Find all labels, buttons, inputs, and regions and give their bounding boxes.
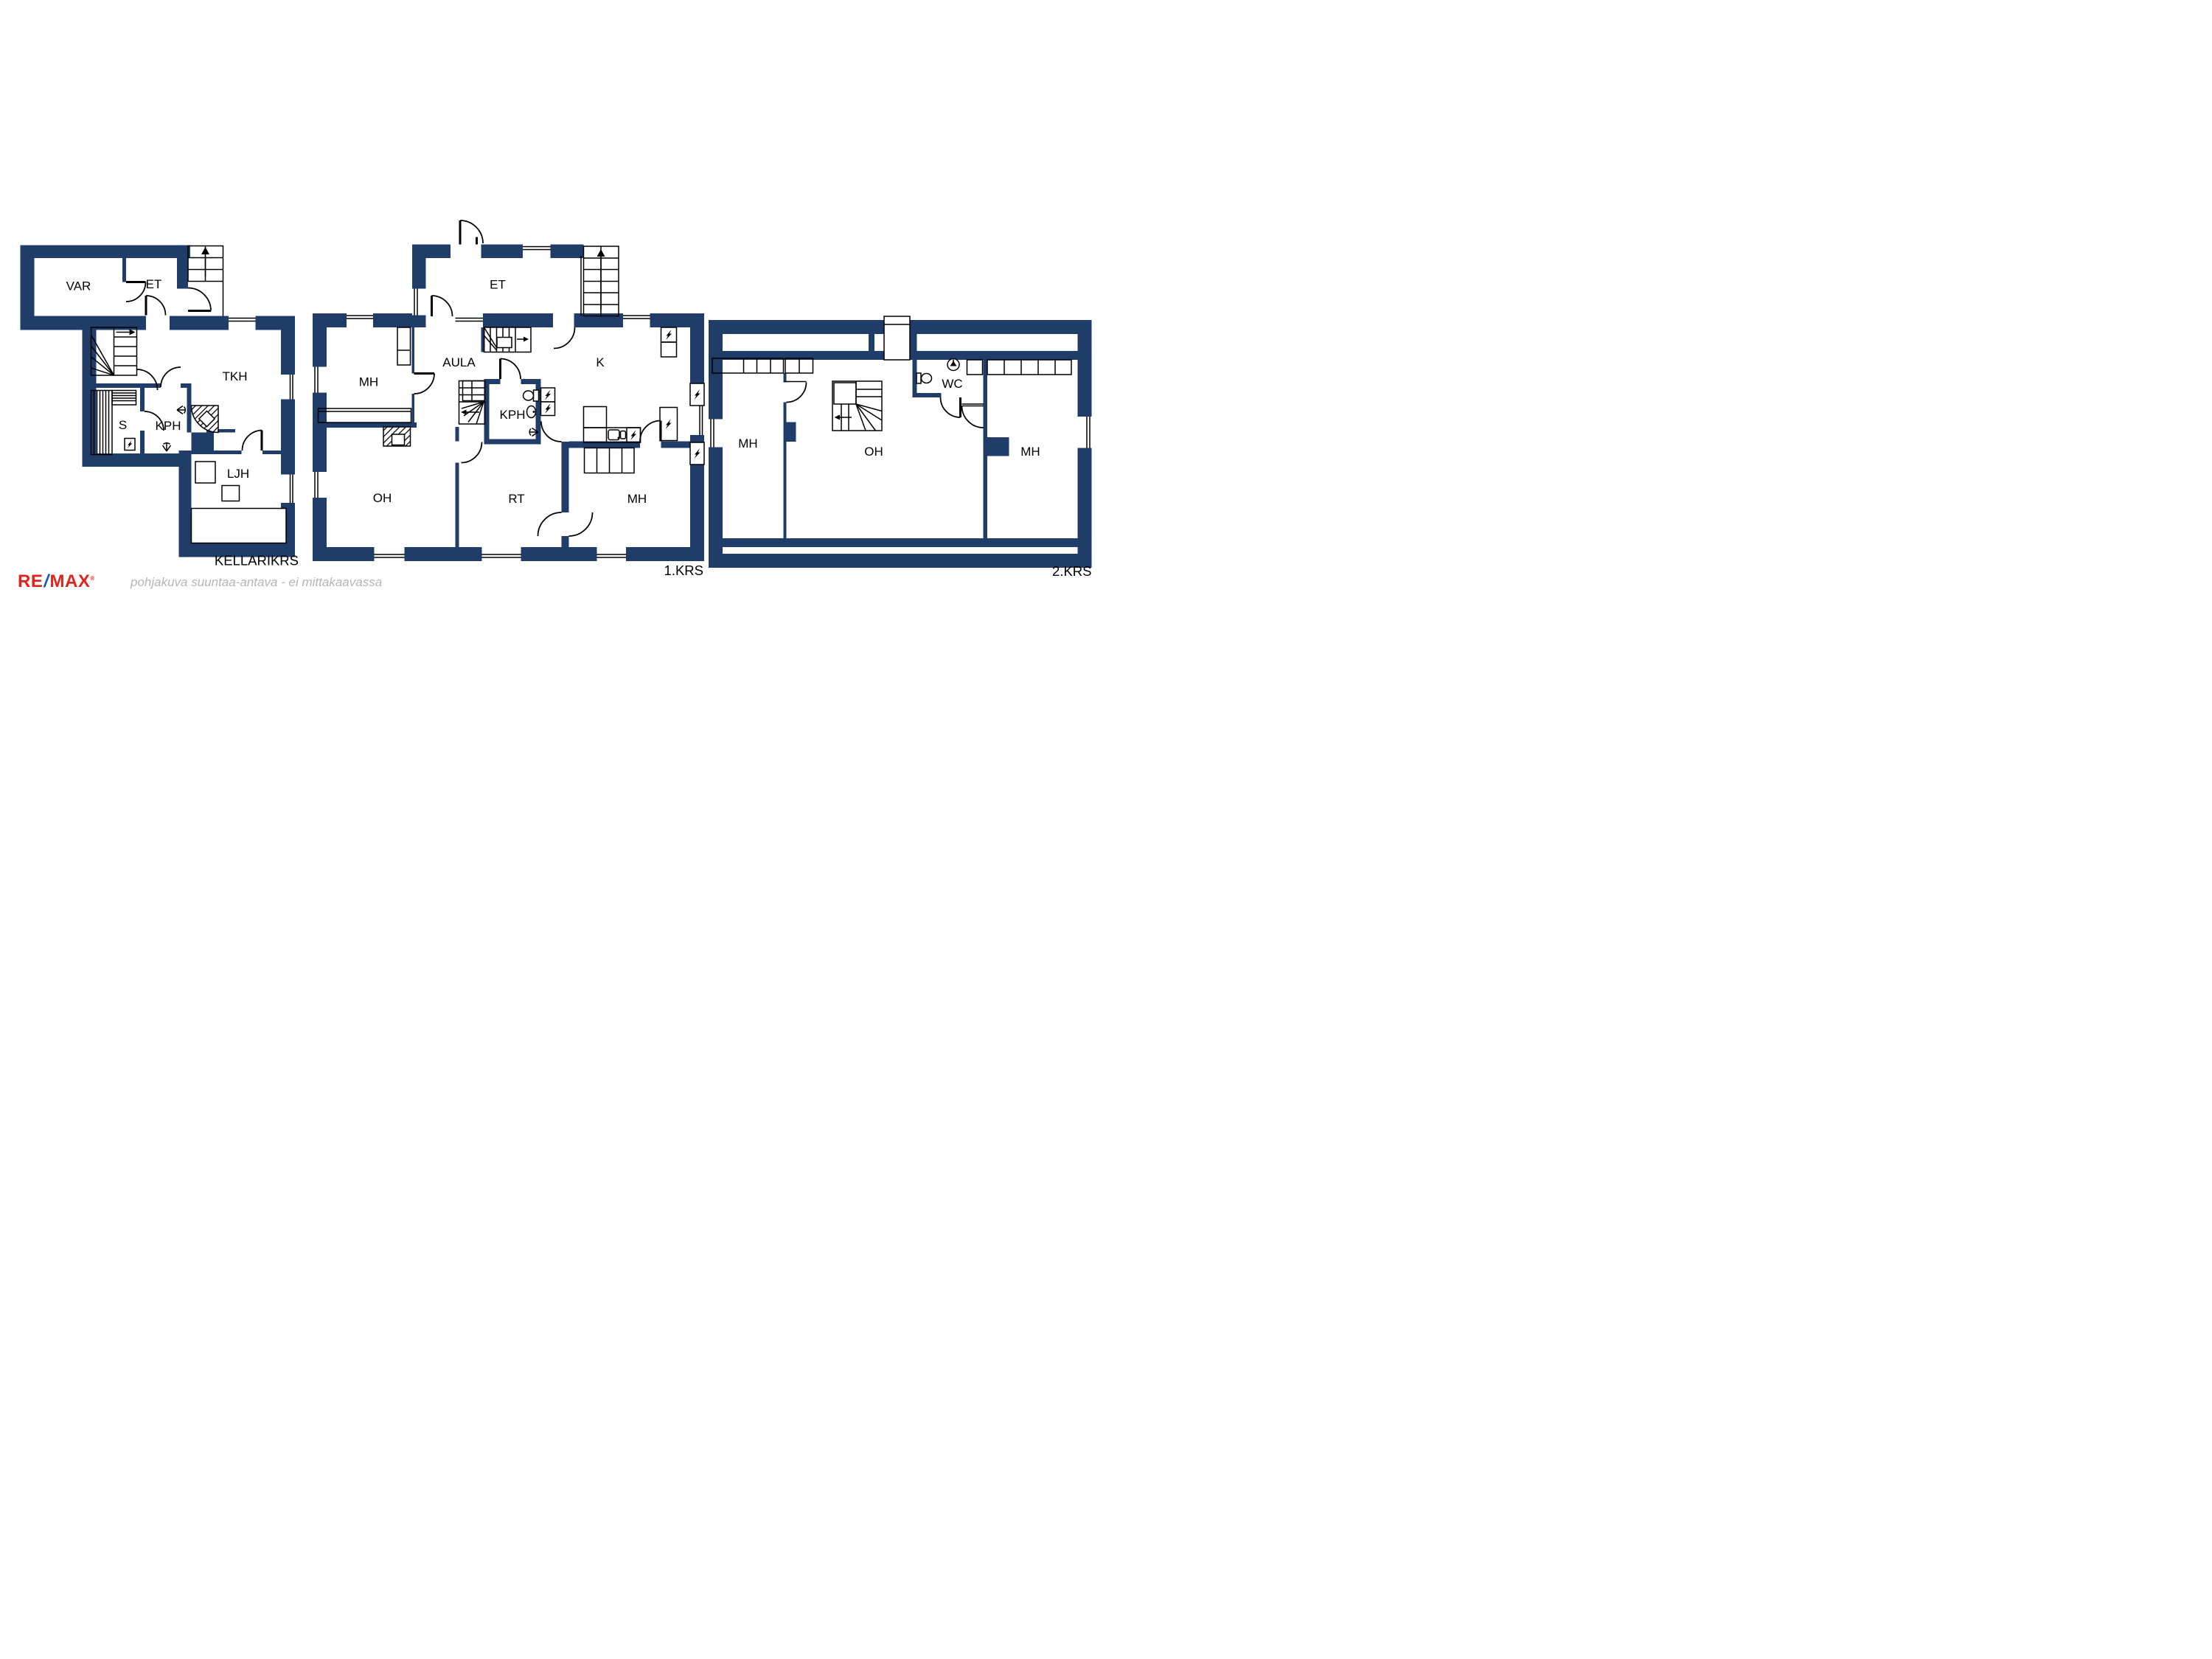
- window-icon: [523, 245, 551, 259]
- lightning-appliance-icon: [541, 388, 555, 416]
- doors: [126, 282, 262, 451]
- logo-re-text: RE: [18, 571, 43, 591]
- window-icon: [412, 289, 426, 316]
- room-label-et: ET: [490, 278, 506, 292]
- window-icon: [690, 406, 704, 435]
- windows: [709, 417, 1092, 448]
- floor-label-kellarikrs: KELLARIKRS: [215, 553, 299, 568]
- window-icon: [451, 316, 483, 328]
- room-label-oh: OH: [373, 491, 392, 505]
- sink-icon: [947, 359, 959, 371]
- entrance-stairs-icon: [581, 246, 619, 316]
- window-icon: [623, 313, 650, 327]
- room-label-tkh: TKH: [223, 369, 248, 383]
- room-label-kph: KPH: [156, 419, 181, 433]
- stairs-down-icon: [832, 381, 882, 431]
- fireplace-icon: [383, 427, 411, 446]
- disclaimer-text: pohjakuva suuntaa-antava - ei mittakaava…: [131, 575, 382, 590]
- room-label-oh: OH: [864, 445, 883, 459]
- kitchen-fixtures: [584, 327, 705, 473]
- entrance-stairs-icon: [188, 246, 223, 316]
- room-label-kph: KPH: [500, 408, 526, 422]
- window-icon: [313, 472, 327, 498]
- room-label-aula: AULA: [442, 355, 476, 369]
- closets: [319, 327, 485, 422]
- toilet-icon: [524, 390, 539, 401]
- room-label-mh: MH: [627, 492, 647, 506]
- room-label-var: VAR: [66, 279, 91, 293]
- remax-logo: RE/MAX®: [18, 571, 95, 592]
- room-label-et: ET: [146, 277, 162, 291]
- windows: [313, 245, 704, 562]
- kitchen-sink-icon: [608, 430, 626, 440]
- stove-icon: [627, 428, 641, 442]
- room-label-mh: MH: [1020, 445, 1040, 459]
- window-icon: [1078, 417, 1092, 448]
- sink-icon: [527, 406, 536, 418]
- logo-registered-mark: ®: [90, 575, 94, 582]
- room-label-ljh: LJH: [227, 467, 249, 481]
- window-icon: [375, 547, 405, 561]
- room-label-s: S: [119, 418, 127, 432]
- chimney-icon: [884, 316, 910, 360]
- toilet-icon: [917, 373, 932, 383]
- window-icon: [347, 313, 373, 327]
- shower-corner-icon: [192, 406, 219, 433]
- window-icon: [281, 475, 295, 504]
- room-label-mh: MH: [738, 437, 757, 451]
- closets: [712, 358, 1071, 375]
- window-icon: [709, 420, 723, 448]
- room-label-rt: RT: [508, 492, 524, 506]
- closet-grid: [463, 381, 485, 401]
- floor-plan-1krs: [313, 220, 704, 561]
- window-icon: [229, 316, 256, 330]
- stairs-up-icon: [484, 327, 532, 352]
- walls: [313, 245, 704, 562]
- window-icon: [281, 375, 295, 400]
- floor-label-2krs: 2.KRS: [1052, 563, 1091, 579]
- floor-label-1krs: 1.KRS: [664, 563, 703, 578]
- doors: [414, 220, 661, 536]
- room-label-wc: WC: [942, 377, 962, 391]
- room-label-mh: MH: [359, 375, 378, 389]
- logo-max-text: MAX: [50, 571, 91, 591]
- sauna-stove-icon: [125, 439, 135, 451]
- terrace-outline: [192, 509, 287, 543]
- floor-plan-2krs: [709, 316, 1092, 568]
- window-icon: [482, 547, 521, 561]
- window-icon: [313, 367, 327, 393]
- room-label-k: K: [596, 355, 605, 369]
- logo-slash: /: [43, 571, 49, 591]
- window-icon: [597, 547, 627, 561]
- floorplan-drawing: VARETTKHSKPHLJHKELLARIKRSETMHAULAKKPHOHR…: [0, 0, 1106, 829]
- floorplan-page: VARETTKHSKPHLJHKELLARIKRSETMHAULAKKPHOHR…: [0, 0, 1106, 829]
- floor-plan-kellarikrs: [21, 246, 296, 557]
- interior-stairs-icon: [91, 327, 137, 375]
